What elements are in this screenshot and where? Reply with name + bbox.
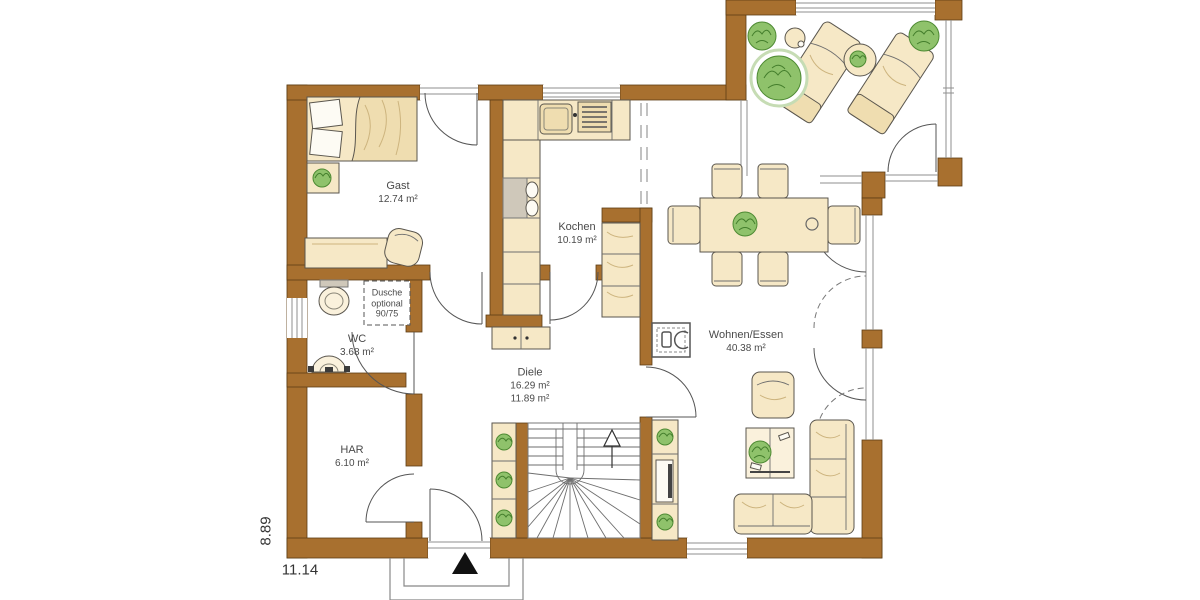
room-label-gast: Gast 12.74 m² [378, 180, 417, 206]
room-area: 6.10 m² [335, 457, 369, 470]
kitchen-tall-cabinet [602, 223, 640, 317]
terrace-plant-large [751, 50, 807, 106]
coffee-table [746, 428, 794, 478]
floor-plan-drawing [0, 0, 1200, 600]
room-area: 40.38 m² [709, 342, 783, 355]
kitchen-window [543, 85, 620, 100]
terrace-bush-right [909, 21, 939, 51]
gast-room-door [430, 272, 482, 324]
dining-table [700, 198, 828, 252]
armchair [752, 372, 794, 418]
fireplace-icon [652, 323, 690, 357]
guest-bed [307, 97, 417, 161]
hall-plant-shelf [492, 423, 516, 538]
room-label-diele: Diele 16.29 m² 11.89 m² [510, 367, 549, 406]
entrance-steps [390, 558, 523, 600]
room-label-kochen: Kochen 10.19 m² [557, 221, 596, 247]
dimension-height: 8.89 [258, 516, 275, 545]
room-area-2: 11.89 m² [510, 393, 549, 406]
entrance-door [428, 489, 490, 558]
wc-window [287, 298, 307, 338]
living-shelf-unit [652, 420, 678, 540]
hall-wardrobe [492, 327, 550, 349]
room-area: 3.68 m² [340, 346, 374, 359]
room-label-har: HAR 6.10 m² [335, 444, 369, 470]
kitchen-hob [578, 102, 611, 132]
kitchen-stove [503, 178, 538, 218]
room-name: WC [340, 333, 374, 346]
shower-optional-note: Dusche optional 90/75 [371, 287, 403, 319]
kitchen-door [550, 272, 598, 324]
guest-chair [382, 226, 424, 268]
guest-desk [305, 238, 387, 268]
kitchen-passage-dashed [641, 103, 647, 206]
room-label-wc: WC 3.68 m² [340, 333, 374, 359]
har-door [366, 474, 414, 522]
gast-garden-door [420, 85, 478, 145]
dimension-width: 11.14 [282, 562, 318, 579]
terrace-side-table-small [785, 28, 805, 48]
floor-plan: Gast 12.74 m² Kochen 10.19 m² WC 3.68 m²… [0, 0, 1200, 600]
room-name: Diele [510, 367, 549, 380]
room-name: Gast [378, 180, 417, 193]
room-area: 10.19 m² [557, 234, 596, 247]
living-room-door [646, 367, 696, 417]
room-name: Wohnen/Essen [709, 329, 783, 342]
kitchen-sink [540, 104, 577, 134]
terrace-side-glazing [943, 20, 954, 158]
room-name: HAR [335, 444, 369, 457]
room-area: 16.29 m² [510, 380, 549, 393]
terrace-door [885, 124, 938, 181]
terrace-bush-left [748, 22, 776, 50]
room-label-wohnen: Wohnen/Essen 40.38 m² [709, 329, 783, 355]
room-name: Kochen [557, 221, 596, 234]
terrace-round-table [844, 44, 876, 76]
living-bottom-window [687, 538, 747, 558]
staircase [528, 423, 640, 538]
terrace-top-window [796, 0, 935, 15]
room-area: 12.74 m² [378, 193, 417, 206]
toilet [319, 280, 349, 315]
guest-nightstand [307, 163, 339, 193]
